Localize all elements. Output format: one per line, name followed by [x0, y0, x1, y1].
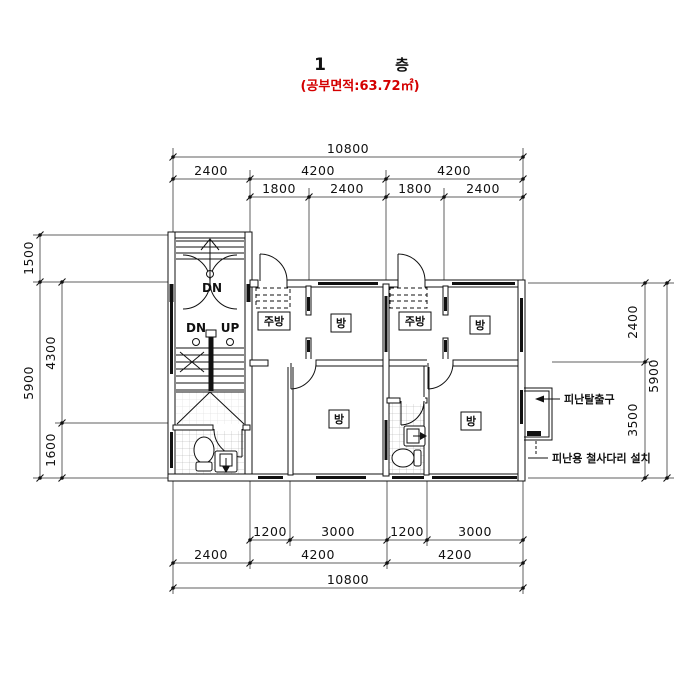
dim-top-2400b: 2400: [466, 181, 500, 196]
window-bottom-room4: [432, 476, 517, 479]
unit2-entrance-door: [398, 254, 425, 281]
kitchen1-counter: [256, 288, 290, 308]
dim-top-total: 10800: [327, 141, 369, 156]
escape-door-right-wall: [520, 390, 523, 424]
dim-left-5900: 5900: [21, 366, 36, 400]
building-walls: [168, 232, 525, 481]
dim-top-2400: 2400: [194, 163, 228, 178]
window-right-wall: [520, 298, 523, 352]
window-bottom-room3: [316, 476, 366, 479]
toilet1: [194, 437, 214, 463]
floor-plan-page: 1 층 (공부면적:63.72㎡) 10800 2400 4200 4200: [0, 0, 700, 685]
dim-bot-1200a: 1200: [253, 524, 287, 539]
entry-dn-label: DN: [202, 281, 222, 295]
floor-number: 1: [314, 55, 326, 75]
dimension-bottom: 1200 3000 1200 3000 2400 4200 4200 10800: [170, 481, 527, 594]
dim-bot-1200b: 1200: [390, 524, 424, 539]
dim-bot-3000b: 3000: [458, 524, 492, 539]
divider2-fill: [444, 297, 447, 311]
dimension-left: 1500 5900 4300 1600: [21, 232, 170, 482]
window-bottom-hall: [258, 476, 283, 479]
room3-label: 방: [334, 412, 344, 426]
stair-rail: [209, 334, 214, 391]
ladder-label: 피난용 철사다리 설치: [552, 451, 651, 465]
floor-label: 층: [395, 56, 409, 74]
dim-bot-4200b: 4200: [438, 547, 472, 562]
room4-label: 방: [466, 414, 476, 428]
window-left-bath: [170, 432, 173, 468]
stair-up-label: UP: [221, 321, 240, 335]
dim-top-4200a: 4200: [301, 163, 335, 178]
dim-right-2400: 2400: [625, 305, 640, 339]
dim-right-5900: 5900: [646, 359, 661, 393]
room2-label: 방: [475, 318, 485, 332]
stair-dn-label: DN: [186, 321, 206, 335]
unit1-entrance-door: [260, 254, 287, 281]
divider1-fill: [307, 297, 310, 311]
exit-arrow: [535, 396, 544, 403]
stair-landing-floor: [176, 392, 244, 424]
window-top-room1: [318, 282, 378, 285]
kitchen1-label: 주방: [264, 314, 284, 328]
dimension-top: 10800 2400 4200 4200 1800 2400 1800 2400: [170, 141, 527, 286]
title-block: 1 층 (공부면적:63.72㎡): [300, 55, 419, 94]
dim-bot-total: 10800: [327, 572, 369, 587]
dim-left-1600: 1600: [43, 433, 58, 467]
kitchen2-label: 주방: [405, 314, 425, 328]
kitchen2-counter: [390, 288, 427, 308]
dim-bot-2400: 2400: [194, 547, 228, 562]
dim-left-1500: 1500: [21, 241, 36, 275]
dim-bot-3000a: 3000: [321, 524, 355, 539]
exit-label: 피난탈출구: [564, 392, 615, 406]
escape-ladder: [527, 431, 541, 436]
window-top-room2: [452, 282, 515, 285]
toilet2: [392, 449, 414, 467]
dim-top-4200b: 4200: [437, 163, 471, 178]
window-bottom-bath2: [392, 476, 424, 479]
dim-top-2400a: 2400: [330, 181, 364, 196]
dim-right-3500: 3500: [625, 403, 640, 437]
window-left-wall: [170, 302, 173, 374]
dim-top-1800a: 1800: [262, 181, 296, 196]
dim-bot-4200a: 4200: [301, 547, 335, 562]
dim-top-1800b: 1800: [398, 181, 432, 196]
floor-plan-drawing: 1 층 (공부면적:63.72㎡) 10800 2400 4200 4200: [0, 0, 700, 685]
room1-label: 방: [336, 316, 346, 330]
area-note: (공부면적:63.72㎡): [300, 78, 419, 94]
dim-left-4300: 4300: [43, 336, 58, 370]
